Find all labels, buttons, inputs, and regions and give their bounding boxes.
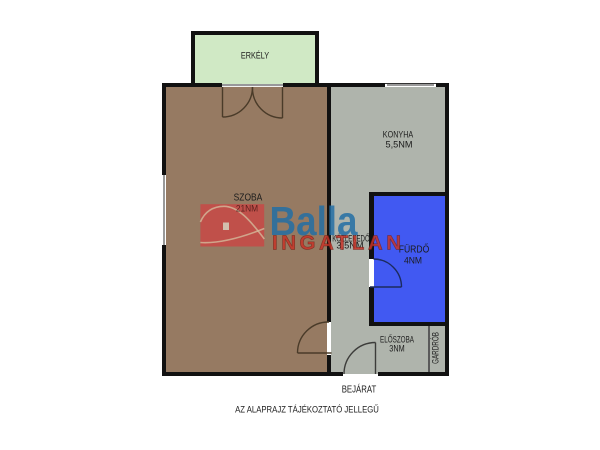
svg-text:INGATLAN: INGATLAN [272, 232, 401, 255]
